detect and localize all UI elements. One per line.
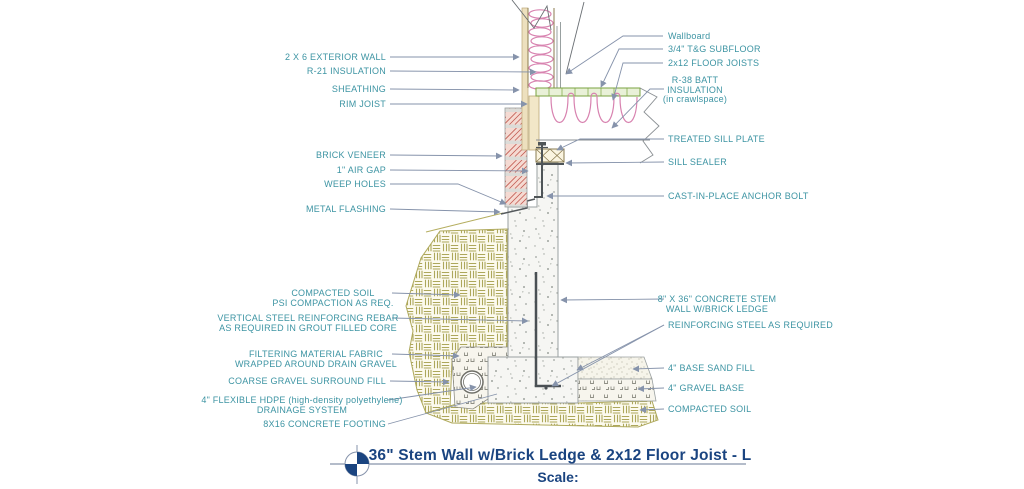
- annotations-left: 2 X 6 EXTERIOR WALL R-21 INSULATION SHEA…: [201, 52, 402, 429]
- label-exterior-wall: 2 X 6 EXTERIOR WALL: [285, 52, 386, 62]
- leader-sill-sealer: [566, 162, 664, 163]
- label-gravel-base: 4" GRAVEL BASE: [668, 383, 744, 393]
- label-stem-wall-1: 8" X 36" CONCRETE STEM: [658, 294, 776, 304]
- label-wallboard: Wallboard: [668, 31, 710, 41]
- label-batt-1: R-38 BATT: [672, 75, 719, 85]
- label-sill-plate: TREATED SILL PLATE: [668, 134, 765, 144]
- scale-label: Scale:: [537, 469, 578, 485]
- label-filter-fabric-2: WRAPPED AROUND DRAIN GRAVEL: [235, 359, 397, 369]
- label-reinforcing-steel: REINFORCING STEEL AS REQUIRED: [668, 320, 833, 330]
- label-weep-holes: WEEP HOLES: [324, 179, 386, 189]
- label-compacted-soil-left-2: PSI COMPACTION AS REQ.: [272, 298, 393, 308]
- annotations-right: Wallboard 3/4" T&G SUBFLOOR 2x12 FLOOR J…: [658, 31, 833, 414]
- label-floor-joists: 2x12 FLOOR JOISTS: [668, 58, 759, 68]
- break-line-floor-right: [640, 88, 659, 163]
- label-footing: 8X16 CONCRETE FOOTING: [263, 419, 386, 429]
- label-subfloor: 3/4" T&G SUBFLOOR: [668, 44, 761, 54]
- label-sand-fill: 4" BASE SAND FILL: [668, 363, 755, 373]
- leader-weep-holes: [390, 184, 506, 204]
- label-hdpe-1: 4" FLEXIBLE HDPE (high-density polyethyl…: [201, 395, 402, 405]
- leader-brick-veneer: [390, 155, 502, 156]
- label-rim-joist: RIM JOIST: [339, 99, 386, 109]
- label-sheathing: SHEATHING: [332, 84, 386, 94]
- leader-sheathing: [390, 89, 519, 90]
- drawing-title: 36" Stem Wall w/Brick Ledge & 2x12 Floor…: [369, 447, 752, 464]
- detail-drawing: 2 X 6 EXTERIOR WALL R-21 INSULATION SHEA…: [0, 0, 1024, 489]
- wallboard: [557, 22, 561, 88]
- base-sand-layer: [578, 357, 652, 379]
- label-batt-3: (in crawlspace): [663, 94, 727, 104]
- leader-r21-insulation: [390, 71, 536, 72]
- label-stem-wall-2: WALL W/BRICK LEDGE: [666, 304, 768, 314]
- crawlspace-batt-insulation: [551, 93, 637, 122]
- label-vertical-rebar-2: AS REQUIRED IN GROUT FILLED CORE: [219, 323, 397, 333]
- north-symbol-icon: [345, 452, 369, 476]
- rim-joist: [529, 96, 539, 150]
- treated-sill-plate: [536, 149, 564, 162]
- label-sill-sealer: SILL SEALER: [668, 157, 727, 167]
- label-filter-fabric-1: FILTERING MATERIAL FABRIC: [249, 349, 383, 359]
- drain-pipe: [461, 371, 483, 393]
- label-compacted-soil-right: COMPACTED SOIL: [668, 404, 751, 414]
- label-r21-insulation: R-21 INSULATION: [307, 66, 386, 76]
- label-coarse-gravel: COARSE GRAVEL SURROUND FILL: [228, 376, 386, 386]
- gravel-base-layer: [578, 379, 656, 401]
- leader-metal-flashing: [390, 209, 500, 212]
- label-hdpe-2: DRAINAGE SYSTEM: [257, 405, 347, 415]
- label-air-gap: 1" AIR GAP: [337, 165, 386, 175]
- sheathing-strip: [522, 8, 528, 150]
- leader-stem-wall: [561, 299, 664, 300]
- label-compacted-soil-left-1: COMPACTED SOIL: [291, 288, 374, 298]
- leader-wallboard: [566, 36, 663, 74]
- concrete-footing: [488, 357, 578, 403]
- label-vertical-rebar-1: VERTICAL STEEL REINFORCING REBAR: [217, 313, 398, 323]
- label-metal-flashing: METAL FLASHING: [306, 204, 386, 214]
- leader-subfloor: [601, 49, 663, 87]
- label-brick-veneer: BRICK VENEER: [316, 150, 386, 160]
- title-block: 36" Stem Wall w/Brick Ledge & 2x12 Floor…: [330, 445, 751, 485]
- label-anchor-bolt: CAST-IN-PLACE ANCHOR BOLT: [668, 191, 809, 201]
- subfloor: [536, 88, 640, 96]
- detail-drawing-page: 2 X 6 EXTERIOR WALL R-21 INSULATION SHEA…: [0, 0, 1024, 489]
